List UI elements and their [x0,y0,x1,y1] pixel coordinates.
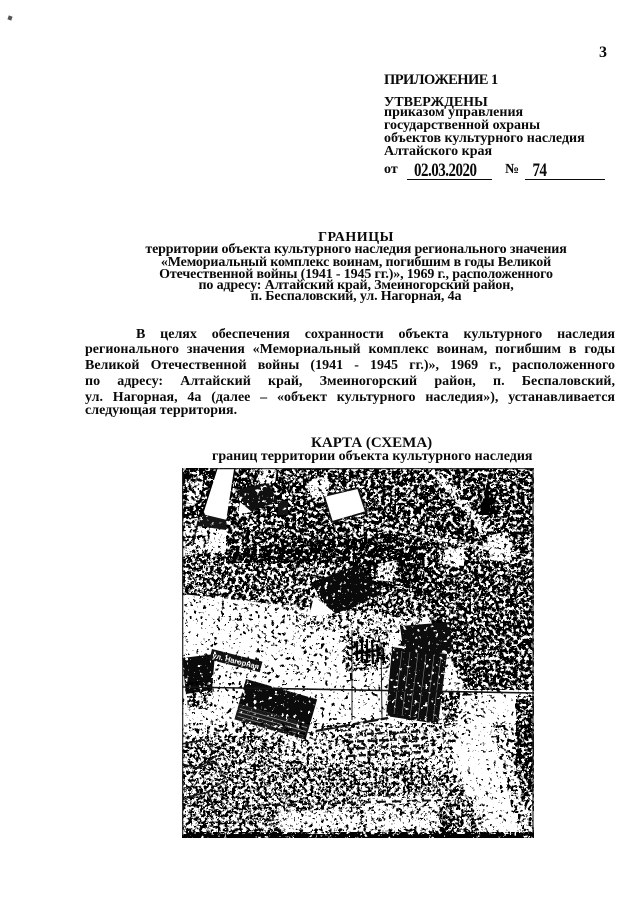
svg-text:4: 4 [378,646,386,662]
svg-text:3: 3 [347,638,354,653]
